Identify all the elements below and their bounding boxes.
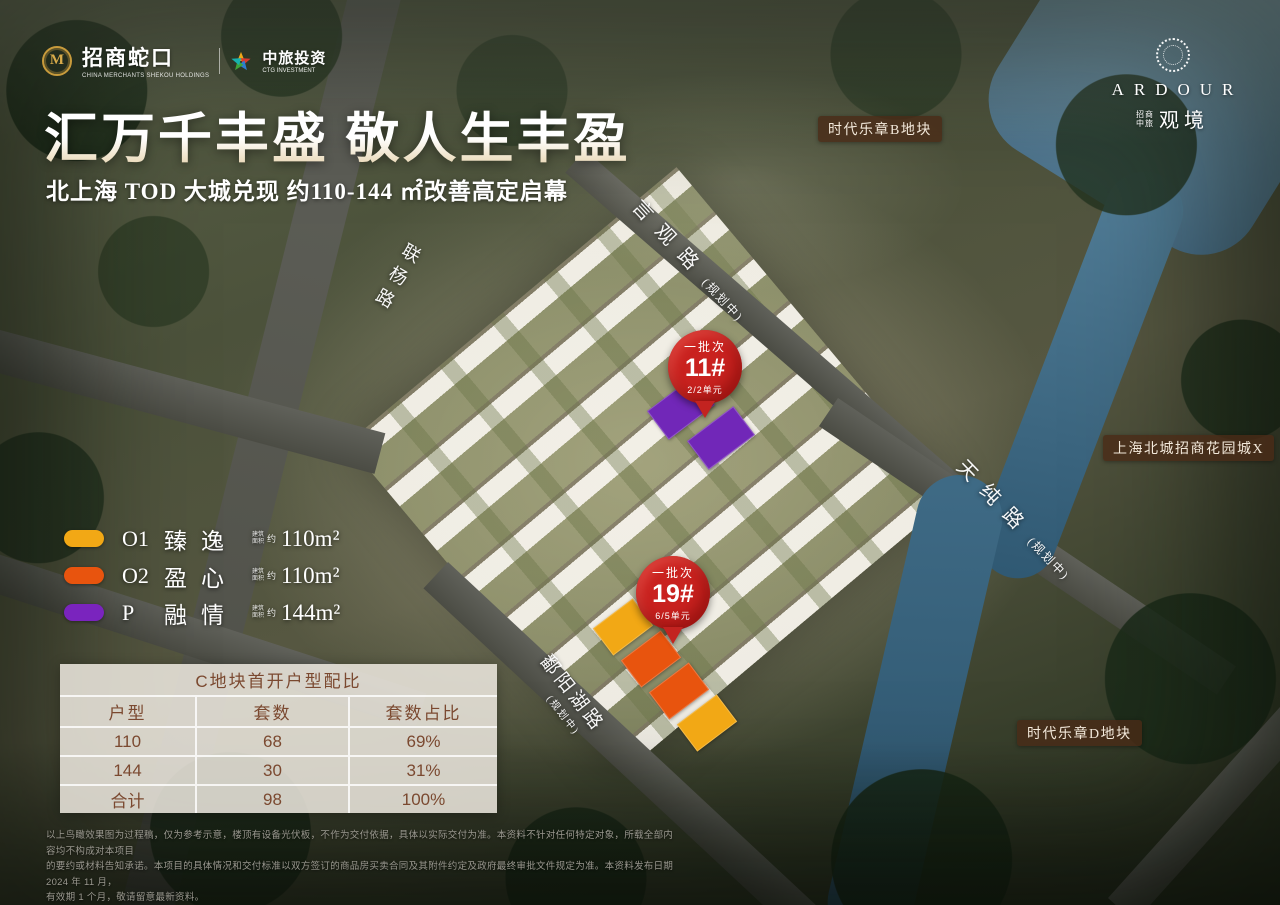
legend-area-caption-bottom: 面积 [252,613,264,620]
legend-item-o2: O2 盈心 建筑 面积 约 110m² [64,557,340,594]
table-cell: 31% [348,755,497,784]
ardour-cn-small-bottom: 中旅 [1136,119,1154,128]
ardour-cn-small-top: 招商 [1136,110,1154,119]
legend-area-caption: 建筑 面积 [252,532,264,546]
legend-area-caption: 建筑 面积 [252,606,264,620]
table-cell: 30 [195,755,348,784]
ardour-cn-big: 观境 [1159,104,1209,133]
marker-units: 6/5单元 [655,609,691,622]
ardour-emblem-icon [1156,38,1190,72]
ardour-brand: ARDOUR 招商 中旅 观境 [1080,38,1265,133]
china-merchants-wordmark: 招商蛇口 CHINA MERCHANTS SHEKOU HOLDINGS [82,42,209,79]
legend-area-caption-top: 建筑 [252,569,264,576]
legend-approx: 约 [267,606,276,619]
marker-balloon: 一批次 11# 2/2单元 [668,330,742,404]
legend-swatch-p [64,604,104,621]
legend-item-o1: O1 臻逸 建筑 面积 约 110m² [64,520,340,557]
legend-item-p: P 融情 建筑 面积 约 144m² [64,594,340,631]
legend-area-caption: 建筑 面积 [252,569,264,583]
legend-area-caption-bottom: 面积 [252,576,264,583]
unit-mix-table: C地块首开户型配比 户型 套数 套数占比 110 68 69% 144 30 3… [60,664,497,813]
marker-building-19: 一批次 19# 6/5单元 [636,556,710,644]
legend-area: 110m² [281,563,339,589]
table-header-ratio: 套数占比 [348,697,497,726]
plot-label-times-d: 时代乐章D地块 [1017,720,1142,746]
cm-name: 招商蛇口 [82,42,209,72]
legend-name: 融情 [164,596,252,630]
marker-units: 2/2单元 [687,383,723,396]
legend-swatch-o2 [64,567,104,584]
legend-area-caption-bottom: 面积 [252,539,264,546]
table-cell-total: 合计 [60,784,195,813]
subheadline: 北上海 TOD 大城兑现 约110-144 ㎡改善高定启幕 [46,172,568,206]
china-merchants-logo-icon: M [42,46,72,76]
ctg-subtitle: CTG INVESTMENT [262,68,326,74]
ctg-star-icon [230,50,252,72]
poster-canvas: M 招商蛇口 CHINA MERCHANTS SHEKOU HOLDINGS 中… [0,0,1280,905]
marker-tail [663,627,683,644]
legend-swatch-o1 [64,530,104,547]
legend-name: 盈心 [164,559,252,593]
cm-subtitle: CHINA MERCHANTS SHEKOU HOLDINGS [82,73,209,79]
table-title: C地块首开户型配比 [60,664,497,697]
unit-type-legend: O1 臻逸 建筑 面积 约 110m² O2 盈心 建筑 面积 约 110m² … [64,520,340,631]
brand-divider [219,48,220,74]
table-cell: 110 [60,726,195,755]
marker-phase: 一批次 [652,564,694,581]
marker-phase: 一批次 [684,338,726,355]
plot-label-garden-city: 上海北城招商花园城X [1103,435,1274,461]
disclaimer-line: 有效期 1 个月，敬请留意最新资料。 [46,890,676,905]
table-cell: 68 [195,726,348,755]
disclaimer: 以上鸟瞰效果图为过程稿，仅为参考示意，楼顶有设备光伏板，不作为交付依据，具体以实… [46,828,676,905]
legend-approx: 约 [267,532,276,545]
legend-name: 臻逸 [164,522,252,556]
ctg-wordmark: 中旅投资 CTG INVESTMENT [262,47,326,74]
marker-building-number: 11# [685,355,725,383]
brand-logos: M 招商蛇口 CHINA MERCHANTS SHEKOU HOLDINGS 中… [42,42,326,79]
table-header-type: 户型 [60,697,195,726]
table-cell-total: 98 [195,784,348,813]
marker-tail [695,401,715,418]
legend-area-caption-top: 建筑 [252,606,264,613]
headline: 汇万千丰盛 敬人生丰盈 [44,94,631,173]
disclaimer-line: 的要约或材料告知承诺。本项目的具体情况和交付标准以双方签订的商品房买卖合同及其附… [46,859,676,890]
legend-approx: 约 [267,569,276,582]
ctg-name: 中旅投资 [262,47,326,68]
table-cell: 144 [60,755,195,784]
ardour-cn-small: 招商 中旅 [1136,110,1154,128]
legend-area: 110m² [281,526,339,552]
plot-label-times-b: 时代乐章B地块 [818,116,942,142]
legend-area: 144m² [281,600,340,626]
marker-balloon: 一批次 19# 6/5单元 [636,556,710,630]
legend-area-caption-top: 建筑 [252,532,264,539]
disclaimer-line: 以上鸟瞰效果图为过程稿，仅为参考示意，楼顶有设备光伏板，不作为交付依据，具体以实… [46,828,676,859]
cm-monogram: M [50,52,64,69]
marker-building-11: 一批次 11# 2/2单元 [668,330,742,418]
ardour-chinese-name: 招商 中旅 观境 [1080,104,1265,133]
table-cell-total: 100% [348,784,497,813]
legend-code: O1 [122,526,164,552]
table-grid: 户型 套数 套数占比 110 68 69% 144 30 31% 合计 98 1… [60,697,497,813]
table-header-count: 套数 [195,697,348,726]
ardour-wordmark: ARDOUR [1080,80,1265,100]
legend-code: P [122,600,164,626]
table-cell: 69% [348,726,497,755]
marker-building-number: 19# [652,581,694,609]
legend-code: O2 [122,563,164,589]
